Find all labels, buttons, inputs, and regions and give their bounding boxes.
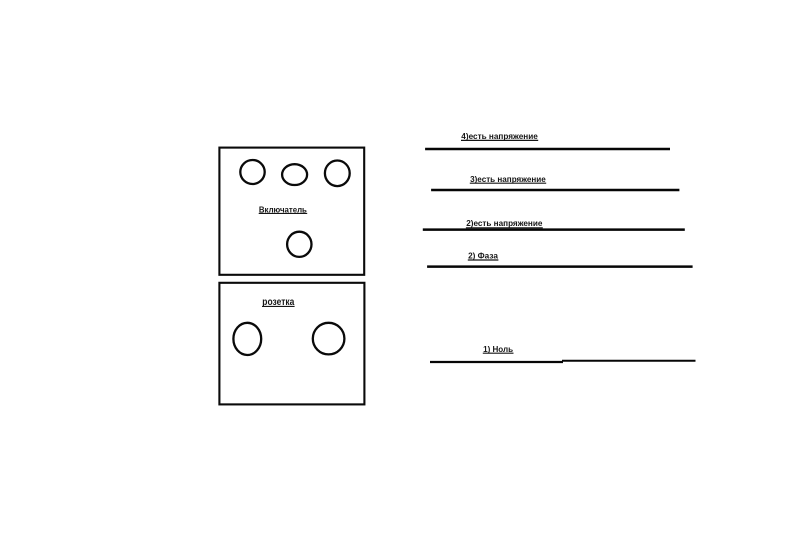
svg-text:1) Ноль: 1) Ноль [483,345,513,354]
svg-text:2) Фаза: 2) Фаза [468,252,498,261]
svg-text:3)есть напряжение: 3)есть напряжение [470,175,546,184]
svg-text:2)есть напряжение: 2)есть напряжение [466,219,543,228]
svg-text:4)есть напряжение: 4)есть напряжение [461,132,538,141]
